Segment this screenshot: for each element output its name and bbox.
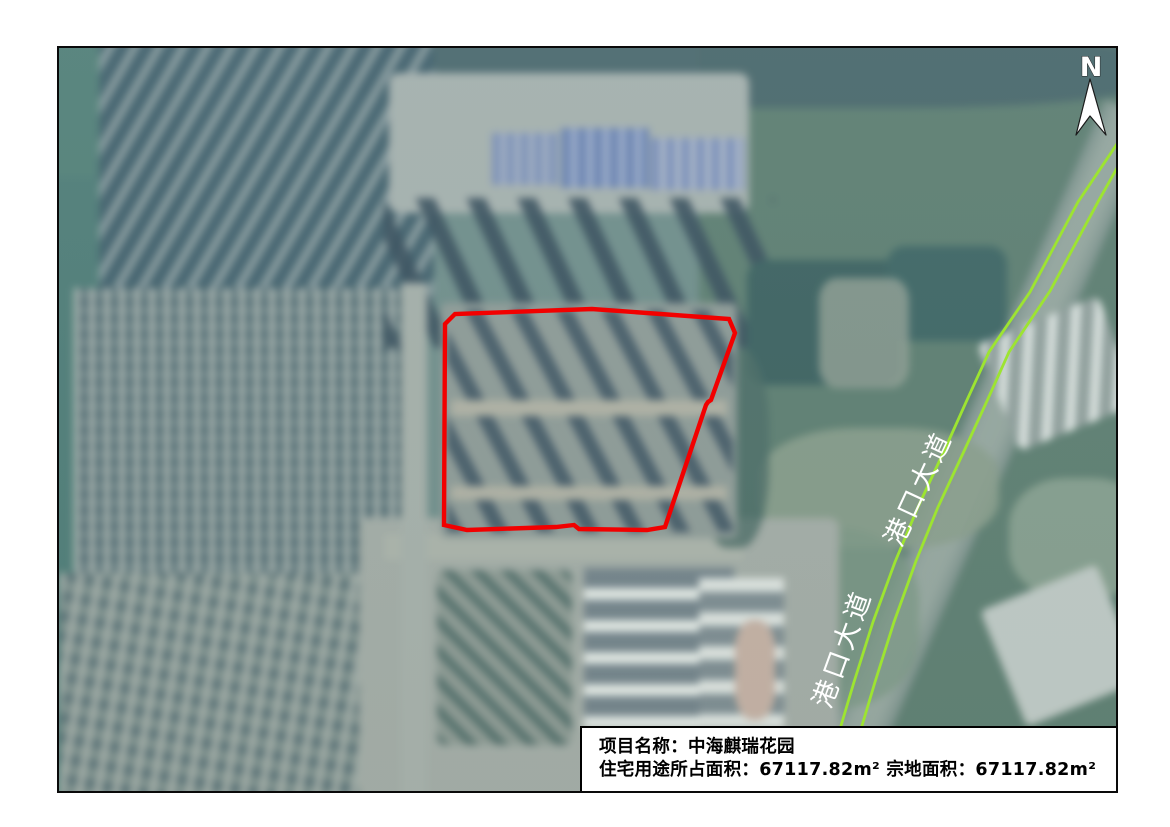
- north-indicator: N: [1076, 52, 1106, 135]
- north-arrow-icon: [1076, 79, 1106, 135]
- north-label: N: [1080, 52, 1103, 83]
- project-info-box: 项目名称：中海麒瑞花园 住宅用途所占面积：67117.82m² 宗地面积：671…: [580, 726, 1118, 793]
- highway-line-left: [825, 138, 1116, 791]
- satellite-map: 港口大道 港口大道 N 项目名称：中海麒瑞花园 住宅用途所占面积：67117.8…: [57, 46, 1118, 793]
- map-overlay: 港口大道 港口大道 N: [59, 48, 1116, 791]
- page: 港口大道 港口大道 N 项目名称：中海麒瑞花园 住宅用途所占面积：67117.8…: [0, 0, 1170, 827]
- parcel-boundary: [444, 309, 735, 530]
- project-name-line: 项目名称：中海麒瑞花园: [599, 736, 1116, 759]
- area-line: 住宅用途所占面积：67117.82m² 宗地面积：67117.82m²: [599, 759, 1116, 782]
- road-label-lower: 港口大道: [807, 585, 879, 712]
- highway-line-right: [846, 161, 1116, 791]
